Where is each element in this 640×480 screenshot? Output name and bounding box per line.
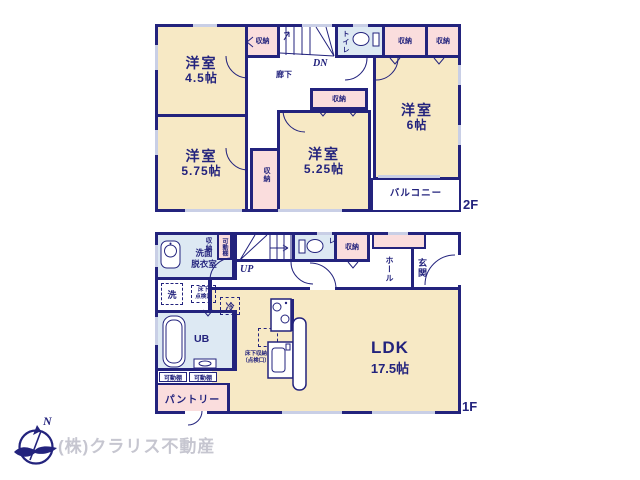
closet-2f-right-1: 収納 xyxy=(385,27,428,58)
room-2f-youshitsu-6: 洋室 6帖 xyxy=(373,58,458,180)
closet-label: 収納 xyxy=(332,94,346,104)
window-sliding xyxy=(278,209,342,212)
floor-1f-label: 1F xyxy=(462,399,477,414)
stairs-2f xyxy=(278,27,338,58)
room-size: 4.5帖 xyxy=(185,71,218,85)
balcony: バルコニー xyxy=(371,178,461,212)
unit-bath: UB xyxy=(158,310,237,371)
washer-space: 洗 xyxy=(161,283,183,305)
closet-label: 収納 xyxy=(345,242,359,252)
floor-plan-page: 洋室 4.5帖 洋室 5.75帖 洋室 5.25帖 洋室 6帖 収納 トイレ 収… xyxy=(0,0,640,480)
toilet-2f-room: トイレ xyxy=(338,27,385,58)
closet-label: 収納 xyxy=(436,36,450,46)
ldk-name: LDK xyxy=(345,338,435,358)
floor-storage-label: 床下収納 （点検口） xyxy=(236,351,276,365)
washer-label: 洗 xyxy=(167,288,176,301)
floor-storage-line2: （点検口） xyxy=(236,358,276,365)
window xyxy=(388,232,408,235)
ldk-label: LDK 17.5帖 xyxy=(345,338,435,372)
hall-label: ホール xyxy=(384,256,395,283)
toilet-1f-room: トイレ xyxy=(295,235,337,262)
window-sliding xyxy=(372,411,435,414)
underfloor-hatch: 床下 点検口 xyxy=(191,285,216,303)
north-mark-label: N xyxy=(43,414,52,429)
window xyxy=(155,45,158,70)
closet-2f-middle: 収納 xyxy=(310,88,368,110)
fridge-space: 冷 xyxy=(220,297,240,315)
balcony-sliding-door xyxy=(378,175,440,178)
window xyxy=(302,24,332,27)
floor-storage-hatch xyxy=(258,328,278,347)
wall xyxy=(335,287,458,290)
stairs-up-label: UP xyxy=(240,264,253,275)
door-arc xyxy=(310,263,336,289)
closet-1f-hall: 収納 xyxy=(337,235,370,262)
entrance-label: 玄関 xyxy=(416,258,429,278)
washroom-label-line2: 脱衣室 xyxy=(182,259,226,270)
room-2f-youshitsu-5-25: 洋室 5.25帖 xyxy=(277,110,371,209)
door-opening xyxy=(185,411,207,414)
closet-label: 収納 xyxy=(398,36,412,46)
balcony-label: バルコニー xyxy=(390,185,442,205)
movable-shelf-washroom: 可動棚 xyxy=(217,235,232,260)
room-name: 洋室 xyxy=(186,148,218,164)
closet-2f-vertical: 収納 xyxy=(250,148,277,209)
stairs-dn-label: DN xyxy=(313,58,327,69)
window xyxy=(155,130,158,155)
window xyxy=(458,125,461,145)
stairs-1f xyxy=(237,235,295,262)
floor-2f-plan: 洋室 4.5帖 洋室 5.75帖 洋室 5.25帖 洋室 6帖 収納 トイレ 収… xyxy=(155,24,461,212)
closet-label: 収納 xyxy=(256,36,270,46)
pantry: パントリー xyxy=(158,383,230,411)
room-size: 5.75帖 xyxy=(181,164,221,178)
wall xyxy=(411,248,414,289)
closet-label: 収納 xyxy=(261,167,271,183)
room-name: 洋室 xyxy=(186,55,218,71)
movable-shelf-1: 可動棚 xyxy=(159,372,187,382)
closet-label: 収納 xyxy=(202,237,212,252)
movable-shelf-label: 可動棚 xyxy=(164,373,182,382)
floor-1f-plan: LDK 17.5帖 洗面 脱衣室 収納 可動棚 UP トイレ 収納 ホール xyxy=(155,232,461,414)
window xyxy=(353,24,368,27)
window-sliding xyxy=(282,411,342,414)
pantry-label: パントリー xyxy=(165,391,221,406)
room-name: 洋室 xyxy=(308,146,340,162)
room-size: 5.25帖 xyxy=(304,162,344,176)
floor-2f-label: 2F xyxy=(463,197,478,212)
north-compass-icon: N xyxy=(10,414,64,472)
company-name: (株)クラリス不動産 xyxy=(58,432,215,457)
corridor-label: 廊下 xyxy=(270,69,298,80)
closet-2f-top: 収納 xyxy=(248,27,280,58)
wall xyxy=(208,280,212,310)
door-arc xyxy=(425,255,455,285)
ldk-size: 17.5帖 xyxy=(345,358,435,377)
entrance-shoe-shelf xyxy=(372,235,426,249)
counter-label: カウンター xyxy=(296,324,306,357)
room-2f-youshitsu-4-5: 洋室 4.5帖 xyxy=(158,27,248,117)
movable-shelf-label: 可動棚 xyxy=(194,373,212,382)
toilet-label: トイレ xyxy=(340,30,350,54)
window xyxy=(193,24,217,27)
room-size: 6帖 xyxy=(407,118,428,132)
window xyxy=(317,232,332,235)
room-name: 洋室 xyxy=(401,102,433,118)
closet-2f-right-2: 収納 xyxy=(428,27,458,58)
floor-storage-line1: 床下収納 xyxy=(236,351,276,358)
door-arc xyxy=(291,262,313,284)
room-2f-youshitsu-5-75: 洋室 5.75帖 xyxy=(158,117,248,209)
window xyxy=(155,245,158,267)
unit-bath-label: UB xyxy=(194,333,209,345)
window xyxy=(155,317,158,345)
door-arc xyxy=(345,58,367,80)
entrance-door-opening xyxy=(458,255,461,285)
movable-shelf-label: 可動棚 xyxy=(220,238,229,256)
window-sliding xyxy=(185,209,242,212)
fridge-label: 冷 xyxy=(225,300,234,313)
movable-shelf-2: 可動棚 xyxy=(189,372,217,382)
window xyxy=(458,65,461,85)
wall xyxy=(212,287,310,290)
